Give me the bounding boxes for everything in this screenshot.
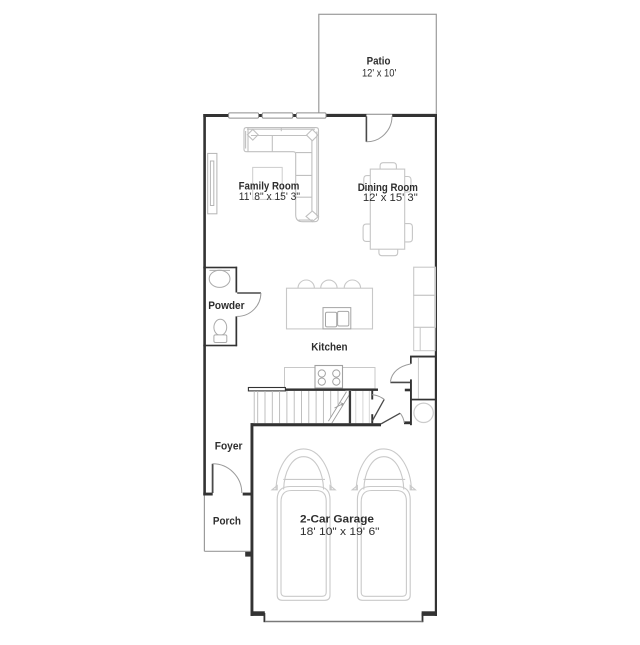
svg-text:12' x 15' 3": 12' x 15' 3" <box>363 192 418 204</box>
svg-text:Foyer: Foyer <box>215 440 243 452</box>
svg-text:18' 10" x 19' 6": 18' 10" x 19' 6" <box>300 526 380 538</box>
svg-text:12' x 10': 12' x 10' <box>362 67 396 79</box>
svg-text:Porch: Porch <box>213 516 241 528</box>
svg-text:11' 8" x 15' 3": 11' 8" x 15' 3" <box>239 191 300 203</box>
svg-text:Kitchen: Kitchen <box>311 341 348 353</box>
svg-text:Powder: Powder <box>208 300 245 312</box>
svg-text:2-Car Garage: 2-Car Garage <box>300 514 374 526</box>
svg-text:Patio: Patio <box>367 56 391 68</box>
